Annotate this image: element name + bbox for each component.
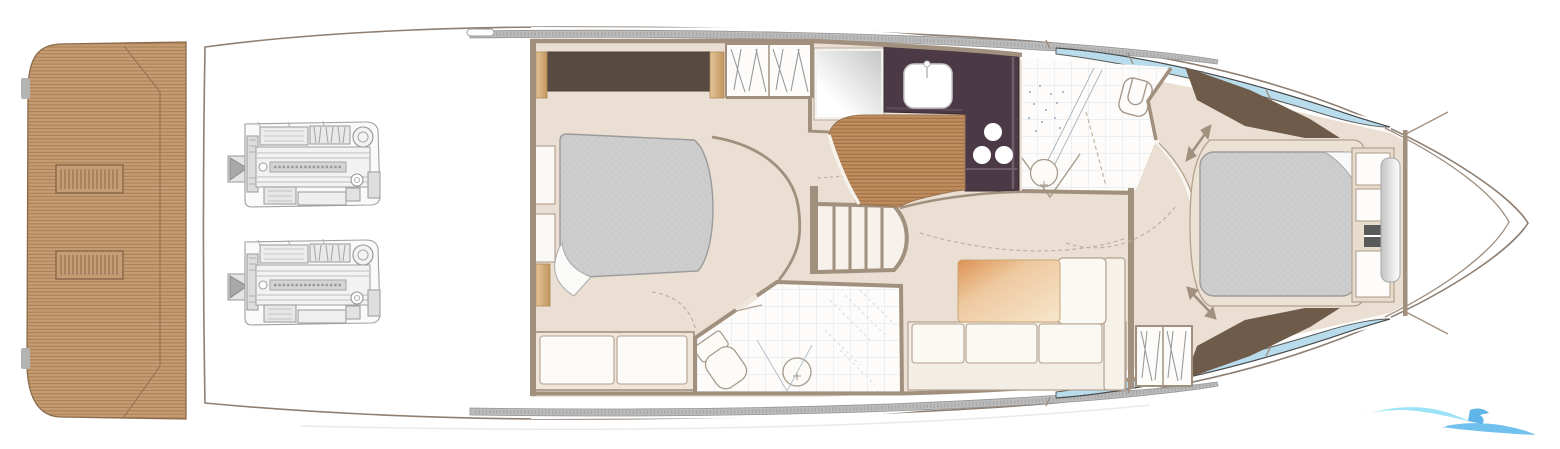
svg-text:GU: GU <box>1434 419 1448 429</box>
